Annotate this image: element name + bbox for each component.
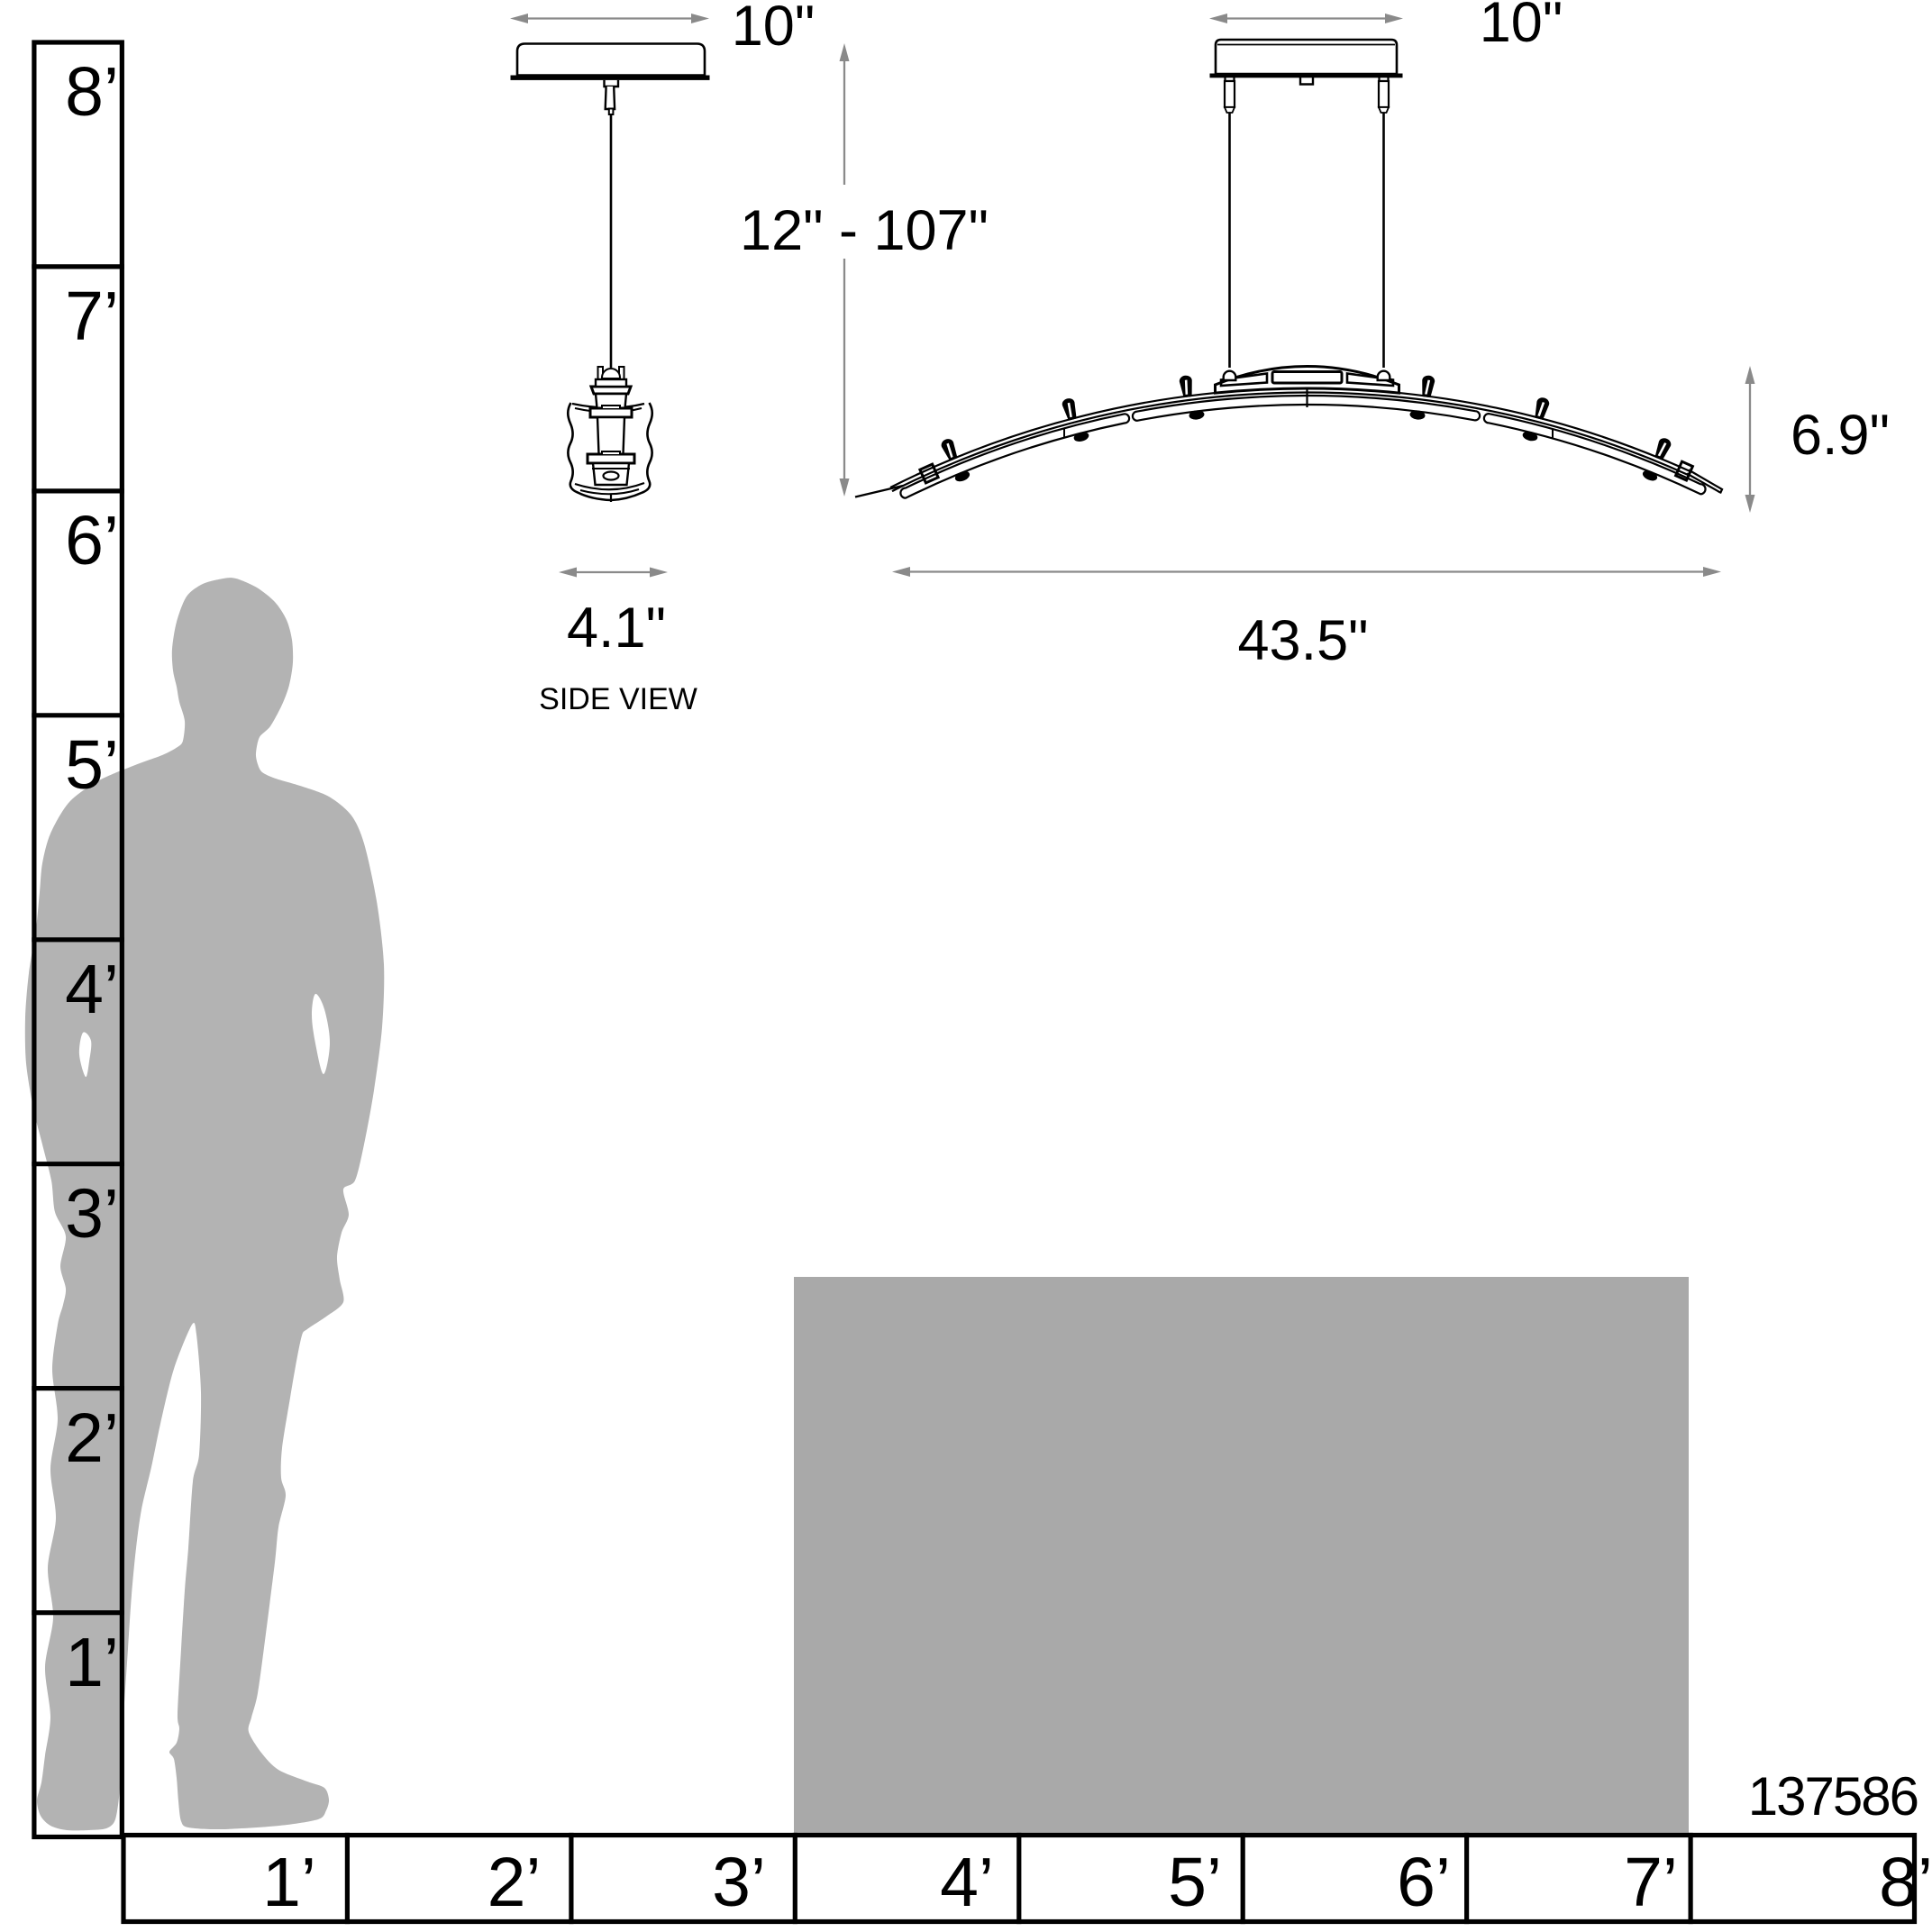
- svg-text:7’: 7’: [65, 278, 119, 355]
- svg-text:SIDE VIEW: SIDE VIEW: [539, 682, 697, 716]
- svg-text:2’: 2’: [65, 1399, 119, 1477]
- svg-text:6’: 6’: [1397, 1844, 1451, 1921]
- svg-text:8’: 8’: [1879, 1844, 1932, 1921]
- svg-text:6’: 6’: [65, 502, 119, 579]
- svg-text:3’: 3’: [65, 1175, 119, 1253]
- svg-text:1’: 1’: [65, 1624, 119, 1701]
- svg-text:137586: 137586: [1748, 1766, 1918, 1827]
- svg-text:10": 10": [732, 0, 815, 58]
- svg-text:7’: 7’: [1624, 1844, 1678, 1921]
- svg-text:10": 10": [1480, 0, 1563, 54]
- svg-text:1’: 1’: [262, 1844, 316, 1921]
- svg-text:6.9": 6.9": [1791, 404, 1890, 467]
- svg-text:4’: 4’: [65, 951, 119, 1028]
- svg-text:12" - 107": 12" - 107": [740, 199, 989, 262]
- svg-text:3’: 3’: [712, 1844, 766, 1921]
- svg-text:43.5": 43.5": [1238, 609, 1369, 672]
- svg-text:4’: 4’: [940, 1844, 994, 1921]
- svg-text:5’: 5’: [65, 726, 119, 804]
- svg-text:8’: 8’: [65, 53, 119, 131]
- svg-text:5’: 5’: [1168, 1844, 1222, 1921]
- svg-text:4.1": 4.1": [567, 597, 666, 660]
- svg-text:2’: 2’: [488, 1844, 542, 1921]
